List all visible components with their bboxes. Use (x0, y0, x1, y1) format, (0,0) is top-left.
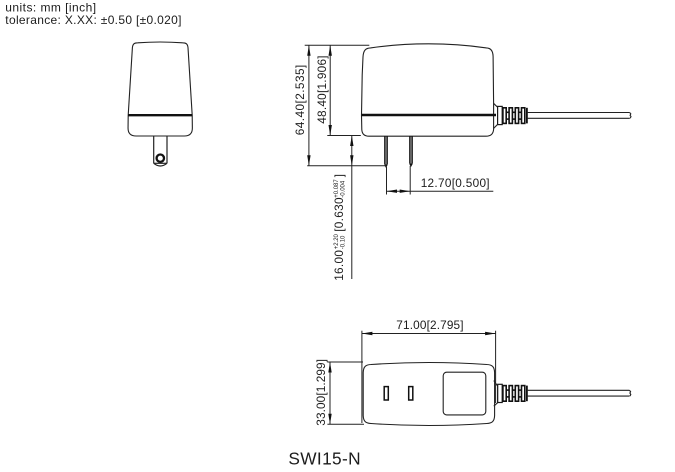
svg-text:tolerance: X.XX: ±0.50 [±0.020: tolerance: X.XX: ±0.50 [±0.020] (5, 13, 182, 27)
svg-text:71.00[2.795]: 71.00[2.795] (396, 318, 463, 332)
svg-text:16.00: 16.00 (332, 250, 346, 281)
svg-text:SWI15-N: SWI15-N (288, 448, 361, 468)
svg-text:]: ] (332, 174, 346, 177)
svg-text:64.40[2.535]: 64.40[2.535] (293, 64, 307, 135)
svg-text:[0.630: [0.630 (332, 197, 346, 232)
svg-text:33.00[1.299]: 33.00[1.299] (314, 359, 328, 426)
svg-text:12.70[0.500]: 12.70[0.500] (421, 176, 490, 190)
svg-text:units: mm [inch]: units: mm [inch] (5, 0, 96, 14)
svg-text:-0.10: -0.10 (340, 235, 346, 249)
svg-text:-0.004: -0.004 (340, 180, 346, 198)
svg-text:+0.087: +0.087 (334, 179, 340, 198)
svg-text:+2.20: +2.20 (334, 233, 340, 249)
svg-text:48.40[1.906]: 48.40[1.906] (315, 55, 329, 124)
